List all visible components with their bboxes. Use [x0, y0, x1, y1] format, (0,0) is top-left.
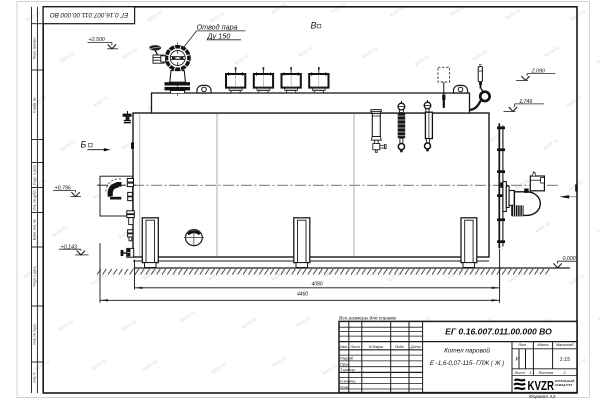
- svg-text:Справ. №: Справ. №: [33, 97, 37, 113]
- svg-text:Масштаб: Масштаб: [556, 343, 574, 347]
- svg-text:Подп. и дата: Подп. и дата: [33, 165, 37, 185]
- svg-text:Лит.: Лит.: [517, 343, 527, 347]
- svg-text:Масса: Масса: [538, 343, 549, 347]
- svg-text:Подп. и дата: Подп. и дата: [33, 266, 37, 286]
- svg-text:И: И: [516, 356, 520, 362]
- svg-text:1:15: 1:15: [560, 357, 571, 363]
- svg-text:Все размеры для справок: Все размеры для справок: [339, 315, 397, 321]
- svg-text:Котел паровой: Котел паровой: [444, 347, 490, 355]
- svg-text:Разраб.: Разраб.: [340, 356, 354, 361]
- svg-text:1: 1: [530, 370, 532, 375]
- svg-text:ЕГ 0.16.007.011.00.000 ВО: ЕГ 0.16.007.011.00.000 ВО: [50, 11, 129, 18]
- svg-text:Т.контр.: Т.контр.: [340, 367, 356, 372]
- svg-text:Лист: Лист: [350, 345, 361, 349]
- svg-text:Подп.: Подп.: [395, 345, 405, 349]
- svg-text:Инв. № дубл.: Инв. № дубл.: [33, 189, 37, 210]
- svg-text:Инв. № подл.: Инв. № подл.: [33, 323, 37, 344]
- svg-text:Лист: Лист: [514, 370, 526, 375]
- svg-text:KVZR: KVZR: [528, 378, 555, 393]
- svg-text:Дата: Дата: [410, 345, 421, 349]
- svg-text:Ду 150: Ду 150: [207, 32, 231, 41]
- svg-text:ЕГ 0.16.007.011.00.000 ВО: ЕГ 0.16.007.011.00.000 ВО: [445, 327, 552, 337]
- svg-text:Формат А3: Формат А3: [529, 394, 556, 400]
- svg-text:Б: Б: [81, 140, 87, 150]
- svg-text:Взам. инв. №: Взам. инв. №: [33, 219, 37, 240]
- svg-text:Пров.: Пров.: [340, 361, 350, 366]
- svg-text:Листов: Листов: [538, 370, 554, 375]
- svg-text:4080: 4080: [311, 282, 322, 288]
- svg-text:Отвод пара: Отвод пара: [197, 22, 238, 31]
- svg-text:В: В: [311, 20, 317, 30]
- svg-text:N докум.: N докум.: [369, 345, 384, 349]
- svg-text:Е -1,6-0,07-115- ГЛЖ ( Ж ): Е -1,6-0,07-115- ГЛЖ ( Ж ): [430, 360, 504, 367]
- svg-text:Утв.: Утв.: [340, 384, 349, 389]
- svg-text:4460: 4460: [297, 292, 308, 298]
- svg-text:Перв. примен.: Перв. примен.: [33, 37, 37, 60]
- svg-text:Инв. N: Инв. N: [33, 372, 37, 383]
- svg-text:ЗАВОД РЭТ: ЗАВОД РЭТ: [555, 383, 573, 387]
- svg-text:Изм.: Изм.: [340, 345, 348, 349]
- svg-text:Н.контр.: Н.контр.: [340, 379, 356, 384]
